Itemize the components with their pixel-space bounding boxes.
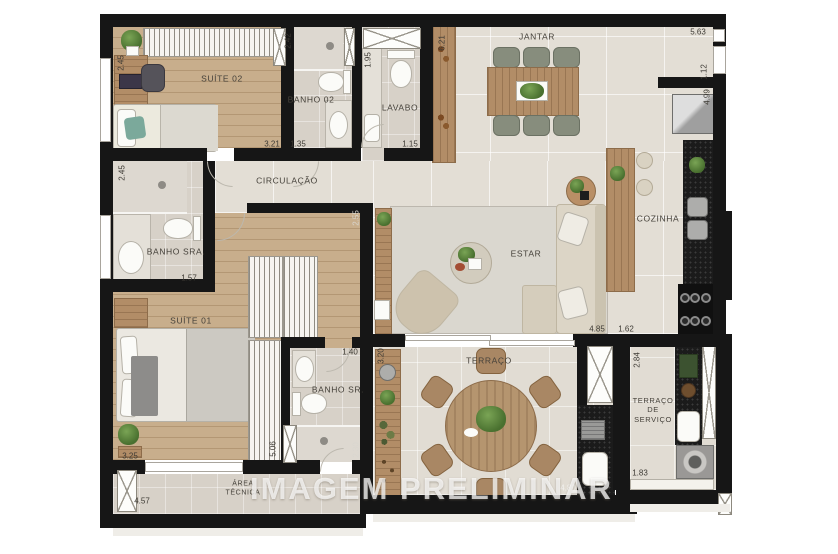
- room-label-lavabo: LAVABO: [382, 103, 418, 114]
- dim-label: 4.57: [134, 497, 150, 506]
- shower-head: [158, 181, 166, 189]
- plant: [380, 390, 395, 405]
- dim-label: 5.06: [269, 441, 278, 457]
- bottles: [378, 418, 396, 446]
- flowers: [464, 428, 478, 437]
- plant: [689, 157, 705, 173]
- dim-label: 3.21: [264, 140, 280, 149]
- dim-label: 2.45: [117, 55, 126, 71]
- cutting-board: [679, 354, 698, 378]
- window: [100, 58, 111, 142]
- shaft-hatch: [344, 28, 355, 66]
- wall: [100, 148, 207, 161]
- window: [713, 46, 726, 74]
- toilet-tank: [193, 216, 201, 241]
- room-label-cozinha: COZINHA: [637, 214, 679, 225]
- basket: [681, 383, 696, 398]
- slab-edge: [630, 504, 730, 512]
- cushion: [124, 116, 147, 141]
- wall: [100, 279, 215, 292]
- blanket: [186, 329, 255, 421]
- sliding-door: [489, 340, 575, 346]
- shower-area: [293, 27, 343, 71]
- room-label-jantar: JANTAR: [519, 32, 555, 43]
- dim-label: 1.95: [364, 52, 373, 68]
- dining-chair: [493, 47, 520, 68]
- closet-rack: [283, 256, 318, 338]
- dim-label: 5.63: [690, 28, 706, 37]
- wall: [352, 337, 373, 348]
- blanket: [160, 105, 218, 151]
- dim-label: 1.15: [402, 140, 418, 149]
- dim-label: 1.35: [290, 140, 306, 149]
- sink-oval: [295, 356, 314, 382]
- cabinet-hatch: [587, 346, 613, 403]
- wardrobe-rack: [143, 28, 281, 57]
- dim-label: 4.85: [589, 325, 605, 334]
- kitchen-sink: [687, 197, 708, 217]
- dim-label: 2.45: [118, 165, 127, 181]
- laptop: [119, 74, 142, 89]
- dining-chair: [553, 47, 580, 68]
- dim-label: 4.99: [703, 89, 712, 105]
- burner: [680, 293, 690, 303]
- dim-label: 1.12: [700, 64, 709, 80]
- wall: [100, 14, 726, 27]
- shower-head: [320, 437, 328, 445]
- window: [713, 29, 725, 42]
- toilet-tank: [387, 50, 415, 59]
- wall: [716, 343, 732, 490]
- grill: [581, 420, 605, 440]
- throw-blanket: [131, 356, 158, 416]
- dim-label: 3.20: [377, 348, 386, 364]
- room-label-estar: ESTAR: [511, 249, 542, 260]
- bowl: [455, 263, 465, 271]
- speaker: [580, 191, 589, 200]
- room-label-banho-sr: BANHO SR.: [312, 385, 364, 396]
- wall: [100, 514, 366, 528]
- wall: [420, 27, 433, 161]
- room-label-banho02: BANHO 02: [288, 95, 335, 106]
- sink-oval: [329, 111, 348, 139]
- stool: [636, 152, 653, 169]
- plant: [610, 166, 625, 181]
- wall: [234, 148, 361, 161]
- closet-rack: [248, 256, 283, 338]
- dim-label: 2.42: [284, 33, 293, 49]
- plant: [118, 424, 139, 445]
- room-label-suite02: SUÍTE 02: [201, 74, 243, 85]
- dim-label: 2.84: [633, 352, 642, 368]
- plant: [476, 406, 506, 432]
- sofa-backrest: [595, 205, 606, 333]
- wall: [577, 347, 587, 405]
- wall: [613, 347, 630, 490]
- shaft-hatch: [363, 28, 421, 49]
- dim-label: 2.30: [352, 442, 361, 458]
- burner: [701, 316, 711, 326]
- dim-label: 3.25: [122, 452, 138, 461]
- burner: [701, 293, 711, 303]
- room-label-terraco: TERRAÇO: [466, 356, 512, 367]
- plant: [377, 212, 391, 226]
- shaft-hatch: [283, 425, 297, 463]
- tray: [468, 258, 482, 270]
- room-label-terraco-servico: TERRAÇO DE SERVIÇO: [633, 396, 674, 424]
- window: [145, 462, 243, 472]
- dim-label: 1.57: [181, 274, 197, 283]
- room-label-suite01: SUÍTE 01: [170, 316, 212, 327]
- toilet-tank: [292, 392, 301, 416]
- stool: [636, 179, 653, 196]
- console-box: [374, 300, 390, 320]
- desk-chair: [141, 64, 165, 92]
- wall: [281, 337, 325, 348]
- slab-edge: [113, 528, 363, 536]
- toilet: [301, 393, 327, 414]
- watermark: IMAGEM PRELIMINAR: [250, 471, 613, 507]
- toilet: [163, 218, 193, 239]
- dim-label: 1.83: [632, 469, 648, 478]
- dim-label: 6.21: [438, 35, 447, 51]
- wall: [373, 334, 405, 347]
- bar-sink-round: [379, 364, 396, 381]
- room-label-banho-sra: BANHO SRA.: [147, 247, 205, 258]
- floor-plan: SUÍTE 02 BANHO 02 LAVABO JANTAR CIRCULAÇ…: [0, 0, 838, 554]
- shower-head: [326, 42, 334, 50]
- toilet: [318, 72, 344, 92]
- bottles: [437, 108, 450, 132]
- sofa-chaise: [522, 285, 557, 334]
- dining-chair: [553, 115, 580, 136]
- dining-chair: [493, 115, 520, 136]
- laundry-sink: [677, 411, 700, 442]
- dim-label: 1.62: [618, 325, 634, 334]
- sink-oval: [118, 241, 144, 274]
- dim-label: 1.40: [342, 348, 358, 357]
- window: [100, 215, 111, 279]
- burner: [690, 316, 700, 326]
- toilet-tank: [343, 70, 351, 94]
- sliding-door: [405, 335, 491, 341]
- cooktop: [678, 284, 713, 334]
- dresser: [114, 298, 148, 328]
- wall: [573, 334, 587, 347]
- service-cabinet-hatch: [702, 346, 716, 439]
- dining-chair: [523, 47, 550, 68]
- washer: [676, 445, 714, 479]
- slab-edge: [373, 514, 635, 522]
- dim-label: 2.55: [352, 210, 361, 226]
- toilet: [390, 60, 412, 88]
- room-label-circulacao: CIRCULAÇÃO: [256, 176, 318, 187]
- shelf-box: [126, 46, 139, 56]
- shaft-hatch: [117, 470, 137, 512]
- dining-chair: [523, 115, 550, 136]
- burner: [690, 293, 700, 303]
- kitchen-sink: [687, 220, 708, 240]
- wall: [713, 211, 732, 300]
- door-sill: [630, 479, 714, 490]
- plant: [520, 83, 544, 99]
- burner: [680, 316, 690, 326]
- wall: [203, 161, 215, 292]
